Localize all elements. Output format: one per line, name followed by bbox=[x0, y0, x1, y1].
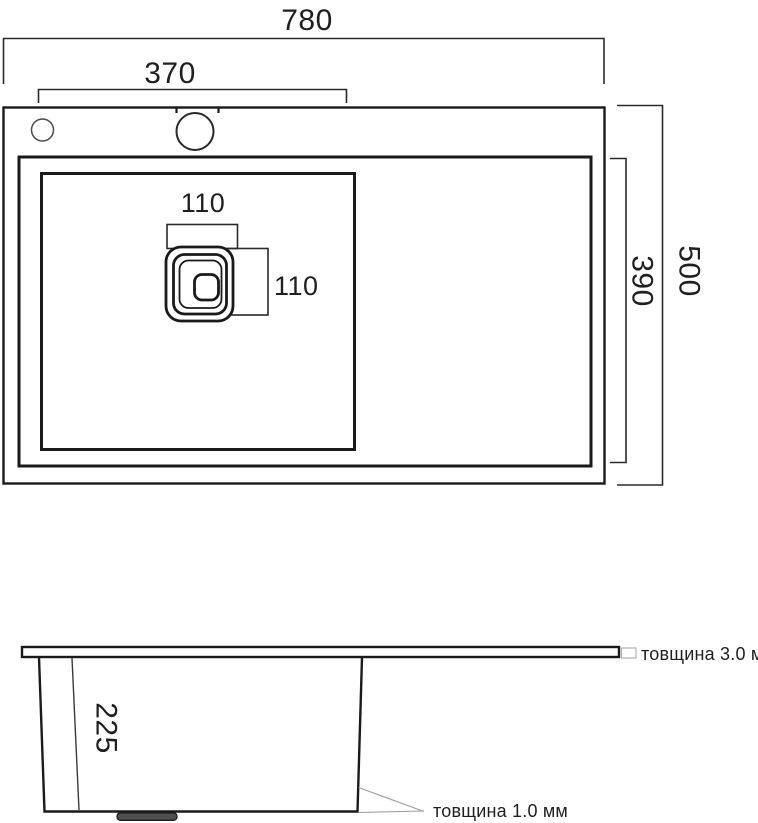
top-thickness-leader-box bbox=[622, 648, 637, 658]
dim-390-label: 390 bbox=[626, 255, 659, 307]
soap-dispenser-hole bbox=[32, 119, 54, 141]
drain-outline bbox=[166, 247, 233, 321]
sink-drawing: 780 370 bbox=[0, 0, 758, 823]
top-thickness-note: товщина 3.0 мм bbox=[641, 644, 758, 664]
dim-370-label: 370 bbox=[144, 57, 196, 90]
dim-390-line bbox=[610, 159, 626, 463]
side-view: товщина 3.0 мм 225 товщина 1.0 мм bbox=[22, 644, 758, 821]
dim-110-width-label: 110 bbox=[181, 188, 226, 218]
flange-bar bbox=[22, 647, 619, 657]
bowl-inner-wall-line bbox=[72, 658, 79, 810]
dim-225-label: 225 bbox=[90, 702, 123, 754]
inner-rim-rect bbox=[19, 157, 591, 466]
dim-780-line bbox=[4, 39, 605, 85]
dim-780-label: 780 bbox=[281, 4, 333, 37]
bowl-profile bbox=[39, 658, 362, 812]
wall-thickness-note: товщина 1.0 мм bbox=[433, 801, 568, 821]
drain-dim-box-horizontal bbox=[167, 225, 238, 249]
dim-370-line bbox=[39, 90, 347, 104]
drain-stub bbox=[117, 813, 177, 821]
technical-drawing-sheet: 780 370 bbox=[0, 0, 758, 823]
faucet-hole bbox=[177, 113, 214, 150]
dim-500-label: 500 bbox=[673, 245, 706, 297]
top-view: 780 370 bbox=[4, 4, 706, 485]
dim-110-height-label: 110 bbox=[274, 271, 319, 301]
wall-thickness-leader bbox=[359, 788, 425, 813]
drain-center-hole bbox=[195, 275, 219, 301]
